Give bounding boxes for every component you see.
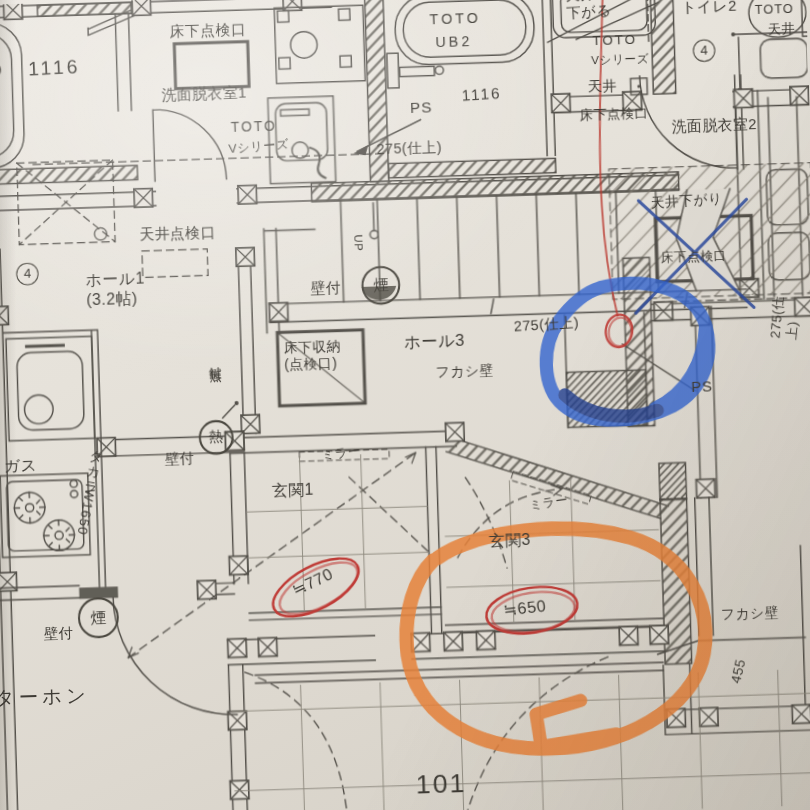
- label-genkan3: 玄関3: [489, 531, 532, 552]
- label-ceiling-hatch: 天井点検口: [139, 224, 216, 244]
- label-interphone: ターホン: [0, 683, 90, 710]
- label-fukashi-1: フカシ壁: [435, 362, 494, 381]
- label-wall-mount-3: 壁付: [44, 625, 74, 643]
- label-dim-bath-ub: 1116: [461, 84, 502, 105]
- label-ceiling-r: 天井: [767, 20, 795, 37]
- label-underfloor-hatch-2: 床下点検口: [579, 105, 648, 123]
- label-ceiling-lowered: 天井 下がる: [565, 0, 612, 22]
- label-gas: ガス: [4, 456, 38, 476]
- ps-leader: [32, 120, 421, 166]
- label-fukashi-2: フカシ壁: [721, 605, 780, 624]
- label-washroom-2: 洗面脱衣室2: [672, 115, 758, 136]
- label-toilet2: トイレ2: [681, 0, 737, 17]
- bottom-walls: [227, 613, 810, 810]
- label-up: UP: [351, 234, 365, 251]
- underfloor-hatch-box-1: [174, 42, 249, 89]
- label-finish275-3: 275(仕上): [767, 289, 804, 341]
- label-vseries-2: Vシリーズ: [591, 51, 650, 67]
- label-underfloor-hatch-3: 床下点検口: [660, 249, 727, 267]
- plan-rotated-wrap: 1116 床下点検口 洗面脱衣室1 TOTO Vシリーズ TOTO UB2 11…: [0, 0, 810, 810]
- label-washroom-1: 洗面脱衣室1: [161, 84, 247, 105]
- label-ub2: UB2: [435, 32, 472, 51]
- label-genkan1: 玄関1: [272, 480, 315, 501]
- floorplan-photo: 1116 床下点検口 洗面脱衣室1 TOTO Vシリーズ TOTO UB2 11…: [0, 0, 810, 810]
- label-wall-mount-2: 壁付: [310, 279, 341, 298]
- label-underfloor-storage: 床下収納 (点検口): [284, 339, 342, 374]
- label-hall3: ホール3: [404, 331, 465, 353]
- label-hall1: ホール1 (3.2帖): [85, 269, 145, 309]
- label-no-key: 鍵無し: [207, 357, 223, 378]
- label-underfloor-hatch-1: 床下点検口: [170, 21, 247, 41]
- label-wall-mount-1: 壁付: [165, 449, 195, 467]
- washer-pan: [274, 5, 365, 83]
- label-ps-1: PS: [410, 98, 433, 117]
- wall-top: [0, 0, 332, 39]
- label-toto-1: TOTO: [231, 118, 277, 136]
- label-finish275-1: 275(仕上): [376, 139, 442, 158]
- label-ceiling-m: 天井: [588, 77, 618, 95]
- label-dim-bath-left: 1116: [28, 55, 82, 81]
- label-toto-ub: TOTO: [429, 10, 481, 29]
- arrowheads: [122, 448, 567, 658]
- label-room-number: 101: [415, 767, 466, 801]
- label-toto-toilet: TOTO: [755, 2, 795, 19]
- label-toto-2: TOTO: [592, 31, 637, 49]
- label-ps-2: PS: [691, 378, 713, 397]
